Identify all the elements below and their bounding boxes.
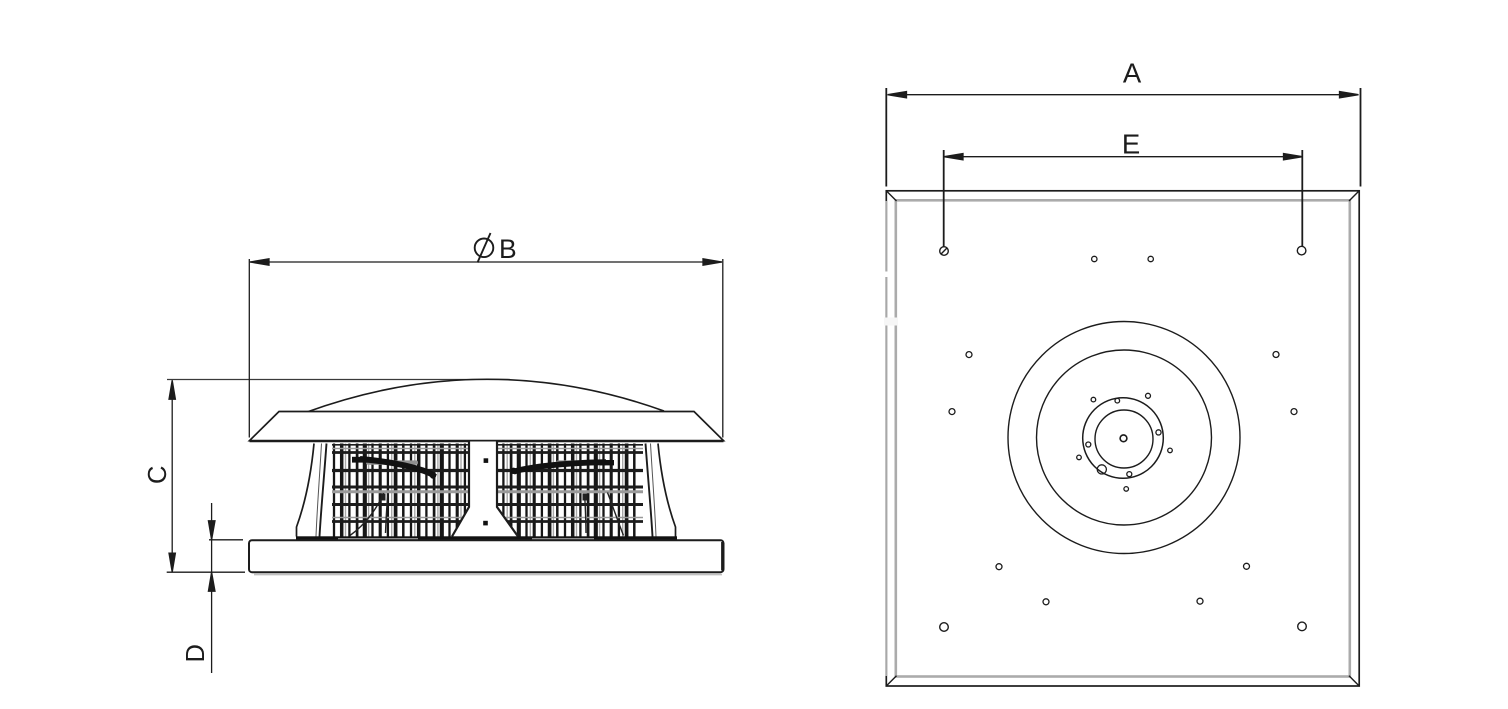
svg-text:C: C — [144, 466, 172, 484]
svg-text:E: E — [1122, 129, 1140, 160]
svg-text:D: D — [182, 644, 210, 662]
svg-text:B: B — [499, 234, 517, 264]
svg-text:A: A — [1123, 58, 1142, 89]
